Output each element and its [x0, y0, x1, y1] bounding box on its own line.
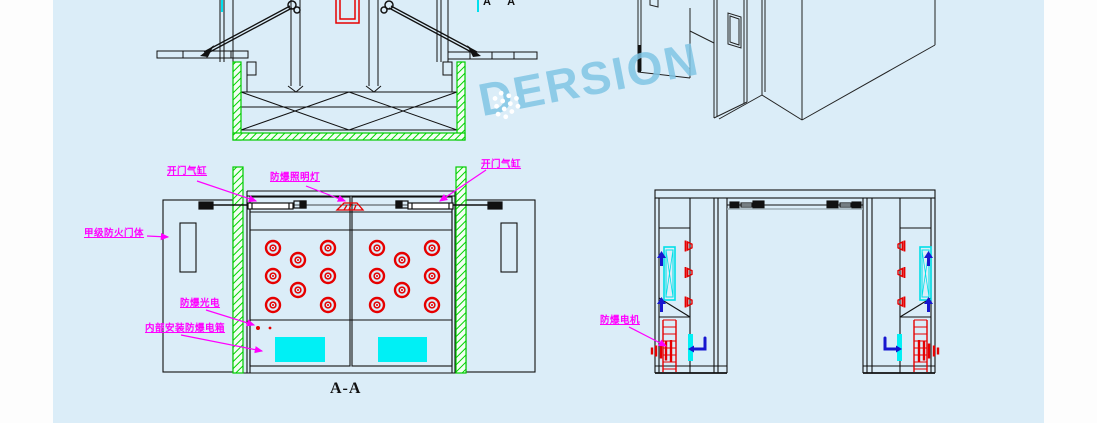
hepa-filters: [664, 247, 931, 300]
section-cut-ticks: [222, 0, 478, 12]
airflow-arrows: [657, 251, 933, 312]
label-door-cylinder-left: 开门气缸: [167, 166, 207, 177]
label-electric-box: 内部安装防爆电箱: [145, 323, 225, 334]
section-cyan-bars: [688, 334, 902, 361]
section-cut-marker: A A: [483, 0, 522, 8]
drawing-page: 开门气缸 防爆照明灯 开门气缸 甲级防火门体 防爆光电 内部安装防爆电箱 防爆电…: [0, 0, 1097, 423]
label-motor: 防爆电机: [600, 315, 640, 326]
label-explosion-proof-lamp: 防爆照明灯: [270, 172, 320, 183]
front-elevation: [163, 191, 535, 373]
label-door-cylinder-right: 开门气缸: [481, 159, 521, 170]
side-section: [655, 190, 935, 373]
electric-boxes: [275, 337, 427, 362]
label-photocell: 防爆光电: [180, 298, 220, 309]
blower-motors: [652, 320, 938, 372]
photocell-sensors: [256, 326, 271, 330]
section-caption: A-A: [330, 380, 361, 398]
plan-view-red-duct: [336, 0, 359, 23]
watermark-logo-dots: [477, 70, 537, 135]
door-guides: [688, 338, 902, 353]
label-fire-door-body: 甲级防火门体: [84, 228, 144, 239]
